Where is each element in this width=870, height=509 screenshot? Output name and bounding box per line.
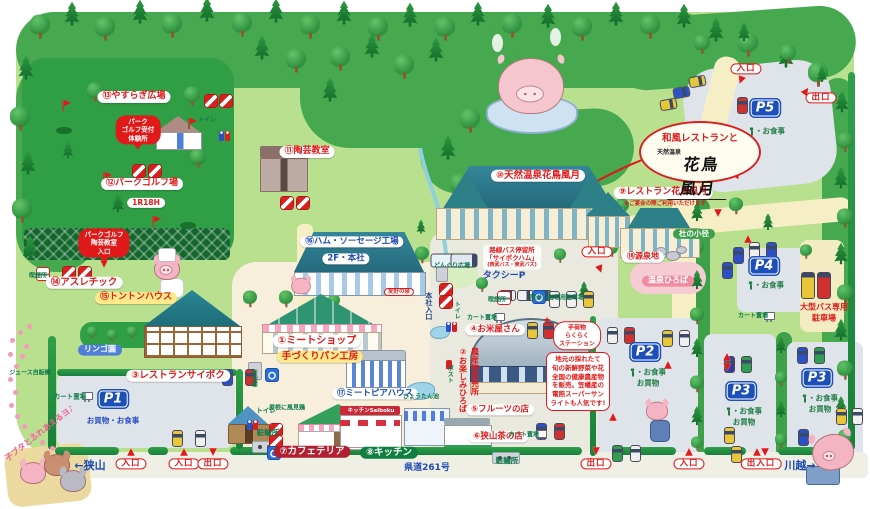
broadleaf-tree xyxy=(775,433,787,444)
car xyxy=(749,242,760,259)
route-arrow-icon: ▲ xyxy=(127,447,135,458)
label-spring-source: ⑱源泉地 xyxy=(622,252,664,263)
caption-text: ・お食事 xyxy=(636,367,666,378)
label-cafeteria: ⑦カフェテリア xyxy=(273,446,350,458)
building-shop-row xyxy=(404,408,448,444)
badge-entrance: 入口 xyxy=(115,458,146,469)
car xyxy=(741,356,752,373)
route-arrow-icon: ▲ xyxy=(714,208,722,219)
label-kitchen-sign: キッチンSaiboku xyxy=(345,408,398,414)
note-line: 地元の採れたて xyxy=(548,355,608,364)
broadleaf-tree xyxy=(30,15,50,34)
parking-sign-p2: P2 xyxy=(631,344,660,361)
car xyxy=(554,423,565,440)
route-arrow-icon: ▲ xyxy=(761,447,769,458)
label-to-sayama: ←狭山 xyxy=(74,460,105,472)
pig-snout xyxy=(516,86,544,103)
label-athletic: ⑭アスレチック xyxy=(46,277,123,289)
car xyxy=(195,430,206,447)
caption-text: お買物 xyxy=(733,417,756,428)
label-cart-area: カート置場 xyxy=(54,393,87,400)
badge-exit: 出口 xyxy=(805,92,836,103)
label-taxi-parking: タクシーP xyxy=(483,272,526,282)
petal-dot xyxy=(22,424,27,429)
golf-flag-icon xyxy=(152,216,154,227)
label-market-line: 農産物直売所 xyxy=(470,348,481,413)
parking-caption-shopping: お買物 xyxy=(637,378,660,389)
label-cart-area: カート置場 xyxy=(467,316,497,323)
label-bicycle-parking: 駐輪所 xyxy=(257,429,280,437)
parking-caption-meal: ・お食事 xyxy=(802,393,838,404)
label-bicycle-parking: 駐輪所 xyxy=(496,457,519,465)
hedge-row xyxy=(148,447,168,455)
route-arrow-icon: ▲ xyxy=(685,447,693,458)
label-yasuragi-plaza: ⑬やすらぎ広場 xyxy=(97,91,170,103)
bubble-line: ステーション xyxy=(559,340,595,348)
petal-dot xyxy=(27,324,32,329)
label-toilet: トイレ xyxy=(453,301,460,319)
parking-caption-meal: ・お食事 xyxy=(630,367,666,378)
note-line: 全国の健康農産物 xyxy=(548,373,608,382)
parking-sign-p3: P3 xyxy=(803,370,832,387)
broadleaf-tree xyxy=(837,285,853,300)
label-tanoshimi-plaza: ②お楽しみひろば 農産物直売所 xyxy=(458,348,481,413)
car xyxy=(679,330,690,347)
label-toilet: トイレ xyxy=(198,118,216,125)
broadleaf-tree xyxy=(800,244,812,255)
note-line: を販売。笠幡産の xyxy=(548,381,608,390)
label-pottery-class: ⑪陶芸教室 xyxy=(279,146,334,158)
petal-dot xyxy=(40,440,45,445)
note-line: ライトも人気です! xyxy=(548,399,608,408)
label-smoking-area: 喫煙所 xyxy=(488,298,506,305)
petal-dot xyxy=(10,338,15,343)
bus-stop-label: 路線バス停留所 「サイボクハム」 (西武バス・東武バス) xyxy=(483,245,541,270)
note-line: 旬の新鮮野菜や花 xyxy=(548,364,608,373)
balloon-line: ゴルフ受付 xyxy=(122,126,155,134)
badge-entrance-exit: 出入口 xyxy=(741,458,782,469)
walking-icon xyxy=(802,394,807,402)
golf-flag-icon xyxy=(62,100,64,111)
label-to-kawagoe: 川越→ xyxy=(784,460,815,472)
caption-text: ・お食事 xyxy=(732,406,762,417)
route-arrow-icon: ▲ xyxy=(753,447,761,458)
label-rice-shop: ④お米屋さん xyxy=(465,324,525,335)
parking-sign-p4: P4 xyxy=(750,258,779,275)
golf-flag-icon xyxy=(188,118,190,129)
walking-icon xyxy=(726,407,731,415)
label-tanoshimi-line: ②お楽しみひろば xyxy=(458,348,469,413)
car xyxy=(662,330,673,347)
badge-entrance: 入口 xyxy=(581,246,612,257)
label-cart-area: カート置場 xyxy=(509,433,539,440)
park-map: パーク ゴルフ受付 体験所 パークゴルフ 陶芸教室 入口 和風レストランと 天然… xyxy=(0,0,870,509)
label-meat-shop: ①ミートショップ xyxy=(273,335,361,348)
car xyxy=(836,408,847,425)
car xyxy=(852,408,863,425)
toilet-icon xyxy=(446,322,457,332)
label-golf-holes: 1R18H xyxy=(127,198,165,208)
car xyxy=(607,327,618,344)
parking-caption-shopping: お買物 xyxy=(809,404,832,415)
petal-dot xyxy=(18,330,23,335)
petal-dot xyxy=(24,344,29,349)
petal-dot xyxy=(8,352,13,357)
petal-dot xyxy=(20,354,25,359)
walking-icon xyxy=(748,281,753,289)
label-restaurant-note: ※ご宴会の際ご利用いただけます xyxy=(624,201,706,207)
car xyxy=(630,445,641,462)
parking-sign-p1: P1 xyxy=(99,391,128,408)
steam-puff xyxy=(492,34,503,52)
activity-pictogram-icon xyxy=(281,197,293,209)
petal-dot xyxy=(14,364,19,369)
label-fruit-shop: ⑤フルーツの店 xyxy=(466,404,534,415)
car xyxy=(737,97,748,114)
petal-dot xyxy=(15,414,20,419)
piglet xyxy=(60,470,86,492)
bus-stop-line: 路線バス停留所 xyxy=(486,246,538,254)
label-juice-vending: ジュース自販機 xyxy=(9,371,50,378)
kachofugetsu-title-balloon: 和風レストランと 天然温泉 花鳥風月 xyxy=(639,121,761,183)
broadleaf-tree xyxy=(780,45,796,60)
activity-pictogram-icon xyxy=(297,197,309,209)
label-bread-workshop: 手づくりパン工房 xyxy=(277,351,363,363)
market-note-box: 地元の採れたて 旬の新鮮野菜や花 全国の健康農産物 を販売。笠幡産の 電照スーパ… xyxy=(546,352,610,411)
car xyxy=(797,347,808,364)
bus xyxy=(817,272,831,299)
parking-caption-shopping: お買物 xyxy=(733,417,756,428)
label-smoking-area: 喫煙所 xyxy=(29,274,47,281)
activity-pictogram-icon xyxy=(149,165,161,177)
route-arrow-icon: ▲ xyxy=(592,446,600,457)
broadleaf-tree xyxy=(837,133,853,148)
caption-text: ・お食事 xyxy=(755,126,785,137)
petal-dot xyxy=(8,377,13,382)
bubble-line: らくらく xyxy=(559,332,595,340)
label-route-261: 県道261号 xyxy=(404,464,450,474)
route-arrow-icon: ▲ xyxy=(723,362,731,373)
label-ham-sausage-factory: ⑯ハム・ソーセージ工場 xyxy=(300,236,403,247)
label-office-entrance: 本社入口 xyxy=(424,292,432,320)
broadleaf-tree xyxy=(300,15,320,34)
badge-exit: 出口 xyxy=(580,458,611,469)
walking-pig xyxy=(646,402,668,421)
toilet-icon xyxy=(219,131,230,141)
car xyxy=(766,242,777,259)
badge-entrance: 入口 xyxy=(730,63,761,74)
label-head-office: 2F・本社 xyxy=(322,253,369,264)
broadleaf-tree xyxy=(775,371,787,382)
putting-green xyxy=(180,222,196,229)
parking-caption-meal: ・お食事 xyxy=(726,406,762,417)
label-park-golf-course: ⑫パークゴルフ場 xyxy=(101,178,183,190)
broadleaf-tree xyxy=(502,14,522,33)
petal-dot xyxy=(50,446,55,451)
car xyxy=(527,322,538,339)
broadleaf-tree xyxy=(837,361,853,376)
parking-caption-meal: ・お食事 xyxy=(748,280,784,291)
broadleaf-tree xyxy=(837,209,853,224)
petal-dot xyxy=(9,403,14,408)
walking-icon xyxy=(630,368,635,376)
pig-snout xyxy=(160,265,173,275)
balloon-line: 体験所 xyxy=(122,134,155,142)
parking-sign-p5: P5 xyxy=(751,100,780,117)
car xyxy=(624,327,635,344)
broadleaf-tree xyxy=(640,15,660,34)
activity-pictogram-icon xyxy=(220,95,232,107)
wheelchair-icon xyxy=(266,369,278,381)
label-cart-area: カート置場 xyxy=(738,314,768,321)
pig-snout xyxy=(823,451,836,461)
balloon-line: 陶芸教室 xyxy=(85,239,124,247)
caption-text: ・お食事 xyxy=(754,280,784,291)
label-onsen-kachofugetsu: ⑩天然温泉花鳥風月 xyxy=(491,170,585,182)
activity-pictogram-icon xyxy=(440,296,452,308)
label-forest-path: 杜の小径 xyxy=(673,229,715,239)
putting-green xyxy=(56,127,72,134)
golf-entrance-balloon: パークゴルフ 陶芸教室 入口 xyxy=(79,228,130,257)
broadleaf-tree xyxy=(190,149,206,164)
label-tonton-house: ⑮トントンハウス xyxy=(95,292,177,304)
golf-reception-balloon: パーク ゴルフ受付 体験所 xyxy=(116,115,161,144)
broadleaf-tree xyxy=(184,87,200,102)
label-onsen-plaza: 温泉ひろば xyxy=(642,276,694,287)
route-arrow-icon: ▲ xyxy=(180,447,188,458)
label-yuko-spring: 友好の泉 xyxy=(384,288,414,296)
car xyxy=(814,347,825,364)
label-disabled-parking: 障がい者専用駐車場 xyxy=(530,296,584,303)
parking-sign-p3: P3 xyxy=(727,383,756,400)
car xyxy=(583,291,594,308)
car xyxy=(722,262,733,279)
route-arrow-icon: ▲ xyxy=(209,447,217,458)
label-hyotan-pond: ひょうたん池 xyxy=(403,395,439,402)
small-pig xyxy=(291,278,311,295)
activity-pictogram-icon xyxy=(205,95,217,107)
parking-caption-p1: お買物・お食事 xyxy=(87,417,140,425)
broadleaf-tree xyxy=(690,307,704,320)
activity-pictogram-icon xyxy=(440,284,452,296)
bus-stop-line: (西武バス・東武バス) xyxy=(486,262,538,268)
petal-dot xyxy=(13,390,18,395)
steam-puff xyxy=(550,28,561,46)
balloon-line: 入口 xyxy=(85,247,124,255)
label-apple-orchard: リンゴ園 xyxy=(78,345,122,356)
broadleaf-tree xyxy=(729,197,743,210)
broadleaf-tree xyxy=(162,14,182,33)
star-marker: ★ xyxy=(543,316,551,326)
caption-text: お買物 xyxy=(637,378,660,389)
baggage-station-bubble: 手荷物 らくらく ステーション xyxy=(553,321,601,350)
label-restaurant-saiboku: ③レストランサイボク xyxy=(126,370,230,382)
car xyxy=(733,247,744,264)
label-kitchen: ⑧キッチン xyxy=(360,447,418,459)
label-bus-parking: 駐車場 xyxy=(812,315,836,324)
chef-hat xyxy=(158,248,176,262)
label-post: ポスト xyxy=(446,365,453,383)
caption-text: お買物 xyxy=(809,404,832,415)
broadleaf-tree xyxy=(694,35,710,50)
car xyxy=(724,427,735,444)
badge-entrance: 入口 xyxy=(168,458,199,469)
label-bus-parking: 大型バス専用 xyxy=(800,304,848,313)
car xyxy=(172,430,183,447)
label-hotei-statue: 布袋様 xyxy=(250,369,257,387)
label-weather-vane: 屋根に風見鶏 xyxy=(269,406,305,413)
broadleaf-tree xyxy=(690,375,704,388)
spring-rock xyxy=(676,246,687,254)
broadleaf-tree xyxy=(243,290,257,303)
badge-exit: 出口 xyxy=(197,458,228,469)
badge-entrance: 入口 xyxy=(673,458,704,469)
piglet xyxy=(20,462,46,484)
car xyxy=(612,445,623,462)
walking-pig-body xyxy=(650,420,670,442)
caption-text: ・お食事 xyxy=(808,393,838,404)
route-arrow-icon: ▲ xyxy=(744,234,752,245)
route-arrow-icon: ▲ xyxy=(609,412,617,423)
activity-pictogram-icon xyxy=(133,165,145,177)
bus xyxy=(801,272,815,299)
label-donguri-plaza: どんぐり広場 xyxy=(434,264,470,271)
balloon-title-line: 和風レストランと xyxy=(641,130,759,144)
balloon-calligraphy: 花鳥風月 xyxy=(667,151,733,200)
note-line: 電照スーパーサン xyxy=(548,390,608,399)
bubble-line: 手荷物 xyxy=(559,324,595,332)
hedge-row xyxy=(848,72,855,450)
